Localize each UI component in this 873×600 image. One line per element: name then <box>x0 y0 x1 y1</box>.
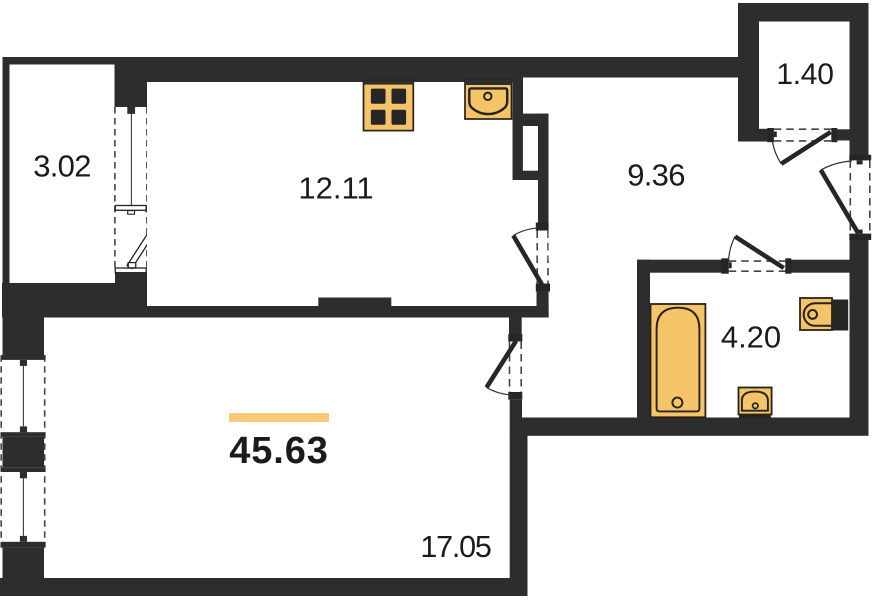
svg-text:12.11: 12.11 <box>298 171 373 206</box>
svg-text:4.20: 4.20 <box>721 320 781 355</box>
svg-text:45.63: 45.63 <box>229 430 329 472</box>
svg-text:17.05: 17.05 <box>420 530 491 564</box>
svg-text:9.36: 9.36 <box>627 158 685 193</box>
svg-text:1.40: 1.40 <box>776 58 833 91</box>
svg-text:3.02: 3.02 <box>33 149 91 184</box>
